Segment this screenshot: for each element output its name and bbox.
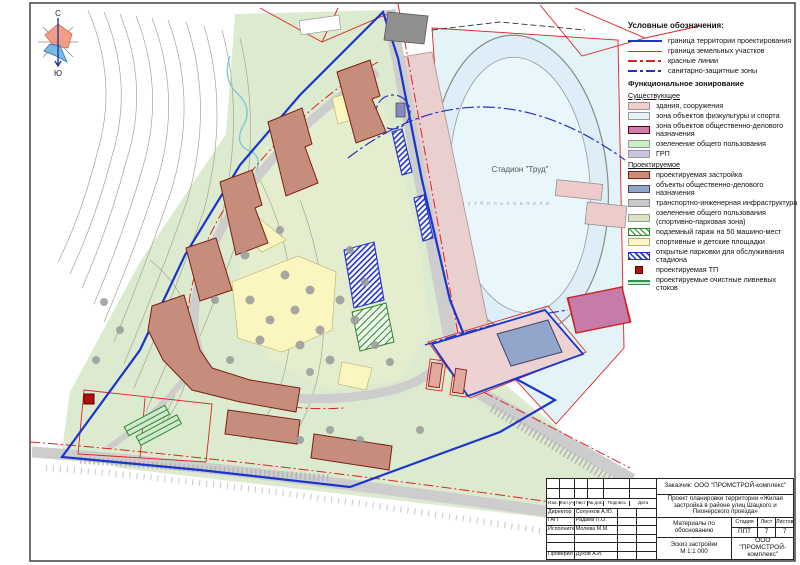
signer-row: ГАП Радаев П.О. [547, 518, 656, 527]
existing-title: Существующее [628, 92, 798, 100]
signer-role: Директор [547, 509, 575, 517]
south-label: Ю [54, 69, 62, 78]
signer-role: Исполнител [547, 526, 575, 534]
legend-existing-items: здания, сооружениязона объектов физкульт… [628, 102, 798, 158]
sheet-value: 7 [758, 528, 776, 537]
legend-label: озеленение общего пользования [656, 140, 798, 148]
legend-fill-item: ГРП [628, 150, 798, 158]
client-cell: Заказчик: ООО "ПРОМСТРОЙ-комплекс" [657, 479, 794, 495]
doc-type-cell: Материалы по обоснованию [657, 518, 732, 537]
sanitary-line-swatch [628, 70, 662, 72]
signer-name: Радаев П.О. [575, 518, 619, 526]
sheet-label: Лист [758, 518, 776, 527]
drawing-scale: М 1:1 000 [680, 549, 708, 556]
stadium-label: Стадион "Труд" [492, 165, 549, 174]
legend-line-item: граница территории проектирования [628, 37, 798, 45]
col-koluch: Кол.уч [560, 501, 575, 506]
legend-fill-item: проектируемая ТП [628, 266, 798, 274]
stage-value-row: ППТ 7 7 [732, 528, 794, 537]
legend-label: объекты общественно-делового назначения [656, 181, 798, 197]
wind-rose: С Ю [38, 9, 78, 78]
legend-fill-item: здания, сооружения [628, 102, 798, 110]
legend-label: транспортно-инженерная инфраструктура [656, 199, 798, 207]
legend-label: санитарно-защитные зоны [668, 67, 798, 75]
legend-fill-item: спортивные и детские площадки [628, 238, 798, 246]
drawing-title-cell: Эскиз застройки М 1:1 000 [657, 538, 732, 559]
utility-line [432, 22, 585, 30]
col-doc: № док. [588, 501, 605, 506]
legend-label: зона объектов физкультуры и спорта [656, 112, 798, 120]
signer-name: Молева М.М. [575, 526, 619, 534]
sheets-label: Листов [776, 518, 794, 527]
col-data: Дата [630, 501, 656, 506]
zoning-title: Функциональное зонирование [628, 80, 798, 89]
legend-swatch [628, 280, 650, 288]
signer-row [547, 543, 656, 552]
legend-swatch [628, 185, 650, 193]
red-lines-swatch [628, 60, 662, 62]
legend-label: озеленение общего пользования (спортивно… [656, 209, 798, 225]
legend-swatch [628, 214, 650, 222]
legend-swatch [628, 112, 650, 120]
parcel-line-swatch [628, 51, 662, 52]
legend-label: проектируемая застройка [656, 171, 798, 179]
legend-swatch [628, 252, 650, 260]
planned-title: Проектируемое [628, 161, 798, 169]
transformer-substation [84, 394, 94, 404]
plan-sheet: Стадион "Труд" ф у т б о л ь н о е п о л… [0, 0, 800, 565]
legend-swatch [628, 126, 650, 134]
legend-label: граница земельных участков [668, 47, 798, 55]
legend-fill-item: проектируемая застройка [628, 171, 798, 179]
signer-row: Проверил Духов А.И. [547, 552, 656, 560]
signature-table: Изм. Кол.уч Лист № док. Подпись Дата Дир… [547, 479, 657, 559]
empty-row [547, 479, 656, 489]
legend-swatch [628, 102, 650, 110]
legend-fill-item: открытые парковки для обслуживания стади… [628, 248, 798, 264]
stage-header-row: Стадия Лист Листов [732, 518, 794, 528]
north-label: С [55, 9, 61, 18]
column-header-row: Изм. Кол.уч Лист № док. Подпись Дата [547, 499, 656, 509]
legend-label: здания, сооружения [656, 102, 798, 110]
legend-label: граница территории проектирования [668, 37, 798, 45]
legend-line-item: санитарно-защитные зоны [628, 67, 798, 75]
legend-label: зона объектов общественно-делового назна… [656, 122, 798, 138]
legend-label: открытые парковки для обслуживания стади… [656, 248, 798, 264]
legend-fill-item: озеленение общего пользования (спортивно… [628, 209, 798, 225]
legend-label: проектируемые очистные ливневых стоков [656, 276, 798, 292]
signer-role: Проверил [547, 552, 575, 560]
legend-swatch [628, 238, 650, 246]
legend-label: красные линии [668, 57, 798, 65]
legend: Условные обозначения: граница территории… [628, 22, 798, 294]
col-list: Лист [575, 501, 588, 506]
title-block: Изм. Кол.уч Лист № док. Подпись Дата Дир… [546, 478, 794, 560]
legend-swatch [628, 150, 650, 158]
legend-label: проектируемая ТП [656, 266, 798, 274]
legend-title: Условные обозначения: [628, 22, 798, 31]
legend-fill-item: озеленение общего пользования [628, 140, 798, 148]
legend-fill-item: зона объектов общественно-делового назна… [628, 122, 798, 138]
col-izm: Изм. [547, 501, 560, 506]
legend-label: спортивные и детские площадки [656, 238, 798, 246]
legend-fill-item: зона объектов физкультуры и спорта [628, 112, 798, 120]
sheets-value: 7 [776, 528, 794, 537]
legend-fill-item: подземный гараж на 50 машино-мест [628, 228, 798, 236]
legend-label: ГРП [656, 150, 798, 158]
col-podpis: Подпись [604, 501, 630, 506]
legend-swatch [628, 199, 650, 207]
signer-row: Директор Солунков А.Ю. [547, 509, 656, 518]
legend-planned-items: проектируемая застройкаобъекты обществен… [628, 171, 798, 292]
signer-row: Исполнител Молева М.М. [547, 526, 656, 535]
legend-fill-item: объекты общественно-делового назначения [628, 181, 798, 197]
legend-swatch [628, 228, 650, 236]
legend-label: подземный гараж на 50 машино-мест [656, 228, 798, 236]
signer-role: ГАП [547, 518, 575, 526]
legend-fill-item: транспортно-инженерная инфраструктура [628, 199, 798, 207]
signer-row [547, 535, 656, 544]
stage-value: ППТ [732, 528, 758, 537]
company-cell: ООО "ПРОМСТРОЙ-комплекс" [732, 538, 794, 559]
field-label: ф у т б о л ь н о е п о л е [460, 201, 550, 207]
project-cell: Проект планировки территории «Жилая заст… [657, 495, 794, 518]
signer-name: Духов А.И. [575, 552, 619, 560]
stage-label: Стадия [732, 518, 758, 527]
legend-swatch [628, 140, 650, 148]
legend-line-item: граница земельных участков [628, 47, 798, 55]
legend-line-item: красные линии [628, 57, 798, 65]
legend-swatch [628, 171, 650, 179]
boundary-line-swatch [628, 40, 662, 42]
legend-fill-item: проектируемые очистные ливневых стоков [628, 276, 798, 292]
signer-name: Солунков А.Ю. [575, 509, 619, 517]
legend-swatch [635, 266, 643, 274]
empty-row [547, 489, 656, 499]
